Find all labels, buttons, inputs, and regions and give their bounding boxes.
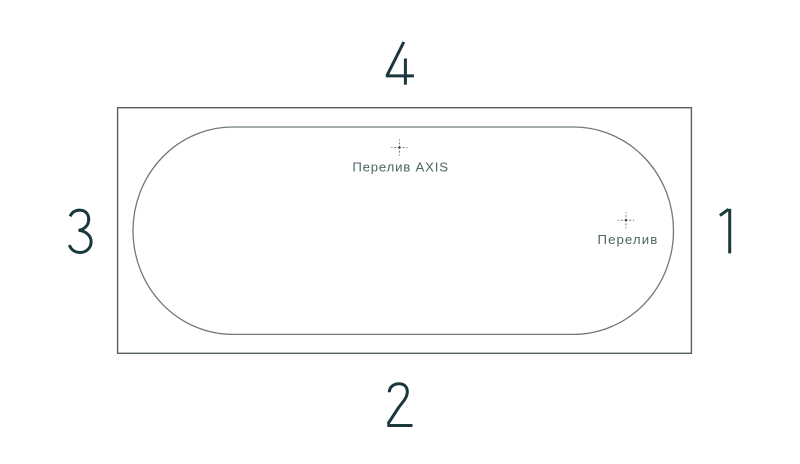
svg-text:Перелив AXIS: Перелив AXIS xyxy=(352,159,448,174)
svg-text:Перелив: Перелив xyxy=(597,232,658,247)
